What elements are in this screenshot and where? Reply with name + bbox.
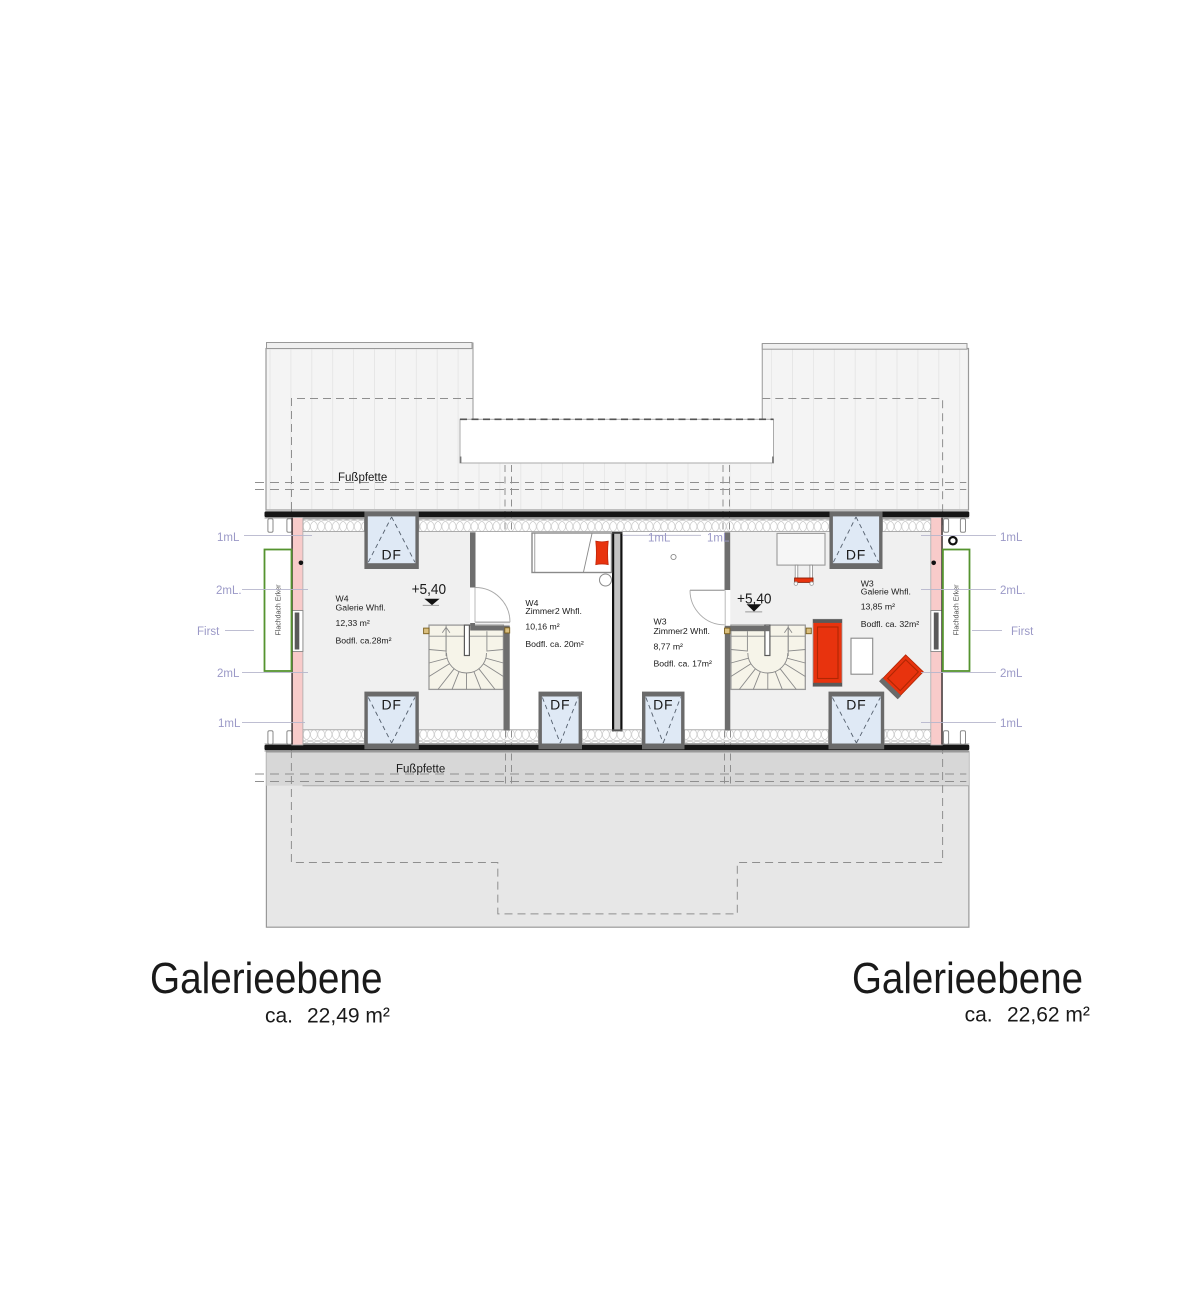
svg-text:2mL: 2mL [217,668,240,680]
svg-text:Bodfl. ca. 17m²: Bodfl. ca. 17m² [654,658,713,668]
svg-text:First: First [1011,626,1034,638]
svg-text:Flachdach Erker: Flachdach Erker [954,584,961,636]
svg-text:DF: DF [846,697,866,713]
svg-text:13,85 m²: 13,85 m² [861,602,895,612]
svg-text:First: First [197,626,220,638]
svg-text:1mL: 1mL [218,718,241,730]
svg-text:12,33 m²: 12,33 m² [336,618,370,628]
svg-text:2mL.: 2mL. [1000,585,1026,597]
svg-text:Bodfl. ca. 20m²: Bodfl. ca. 20m² [525,639,584,649]
svg-text:Galerie Whfl.: Galerie Whfl. [861,587,911,597]
svg-text:22,62 m²: 22,62 m² [1007,1004,1090,1027]
svg-text:1mL: 1mL [1000,532,1023,544]
svg-text:10,16 m²: 10,16 m² [525,622,559,632]
svg-text:Bodfl. ca. 32m²: Bodfl. ca. 32m² [861,619,920,629]
svg-text:1mL: 1mL [1000,718,1023,730]
svg-text:Zimmer2 Whfl.: Zimmer2 Whfl. [654,626,710,636]
svg-text:Galerieebene: Galerieebene [852,954,1083,1003]
svg-text:2mL.: 2mL. [216,585,242,597]
svg-text:DF: DF [381,697,401,713]
svg-text:DF: DF [550,697,570,713]
svg-text:8,77 m²: 8,77 m² [654,641,684,651]
svg-text:DF: DF [846,547,866,563]
svg-text:Zimmer2 Whfl.: Zimmer2 Whfl. [525,606,581,616]
svg-text:DF: DF [653,697,673,713]
svg-text:+5,40: +5,40 [412,581,447,598]
svg-text:1mL: 1mL [648,533,671,545]
svg-text:1mL: 1mL [217,532,240,544]
svg-text:1mL: 1mL [707,533,730,545]
svg-text:ca.: ca. [265,1005,293,1028]
svg-text:ca.: ca. [965,1004,993,1027]
svg-text:Galerieebene: Galerieebene [150,954,383,1003]
svg-text:Galerie Whfl.: Galerie Whfl. [336,602,386,612]
svg-text:2mL: 2mL [1000,668,1023,680]
svg-text:Bodfl. ca.28m²: Bodfl. ca.28m² [336,636,392,646]
svg-text:Fußpfette: Fußpfette [338,472,387,484]
svg-text:DF: DF [381,547,401,563]
svg-text:Flachdach Erker: Flachdach Erker [276,584,283,636]
svg-text:22,49 m²: 22,49 m² [307,1005,390,1028]
